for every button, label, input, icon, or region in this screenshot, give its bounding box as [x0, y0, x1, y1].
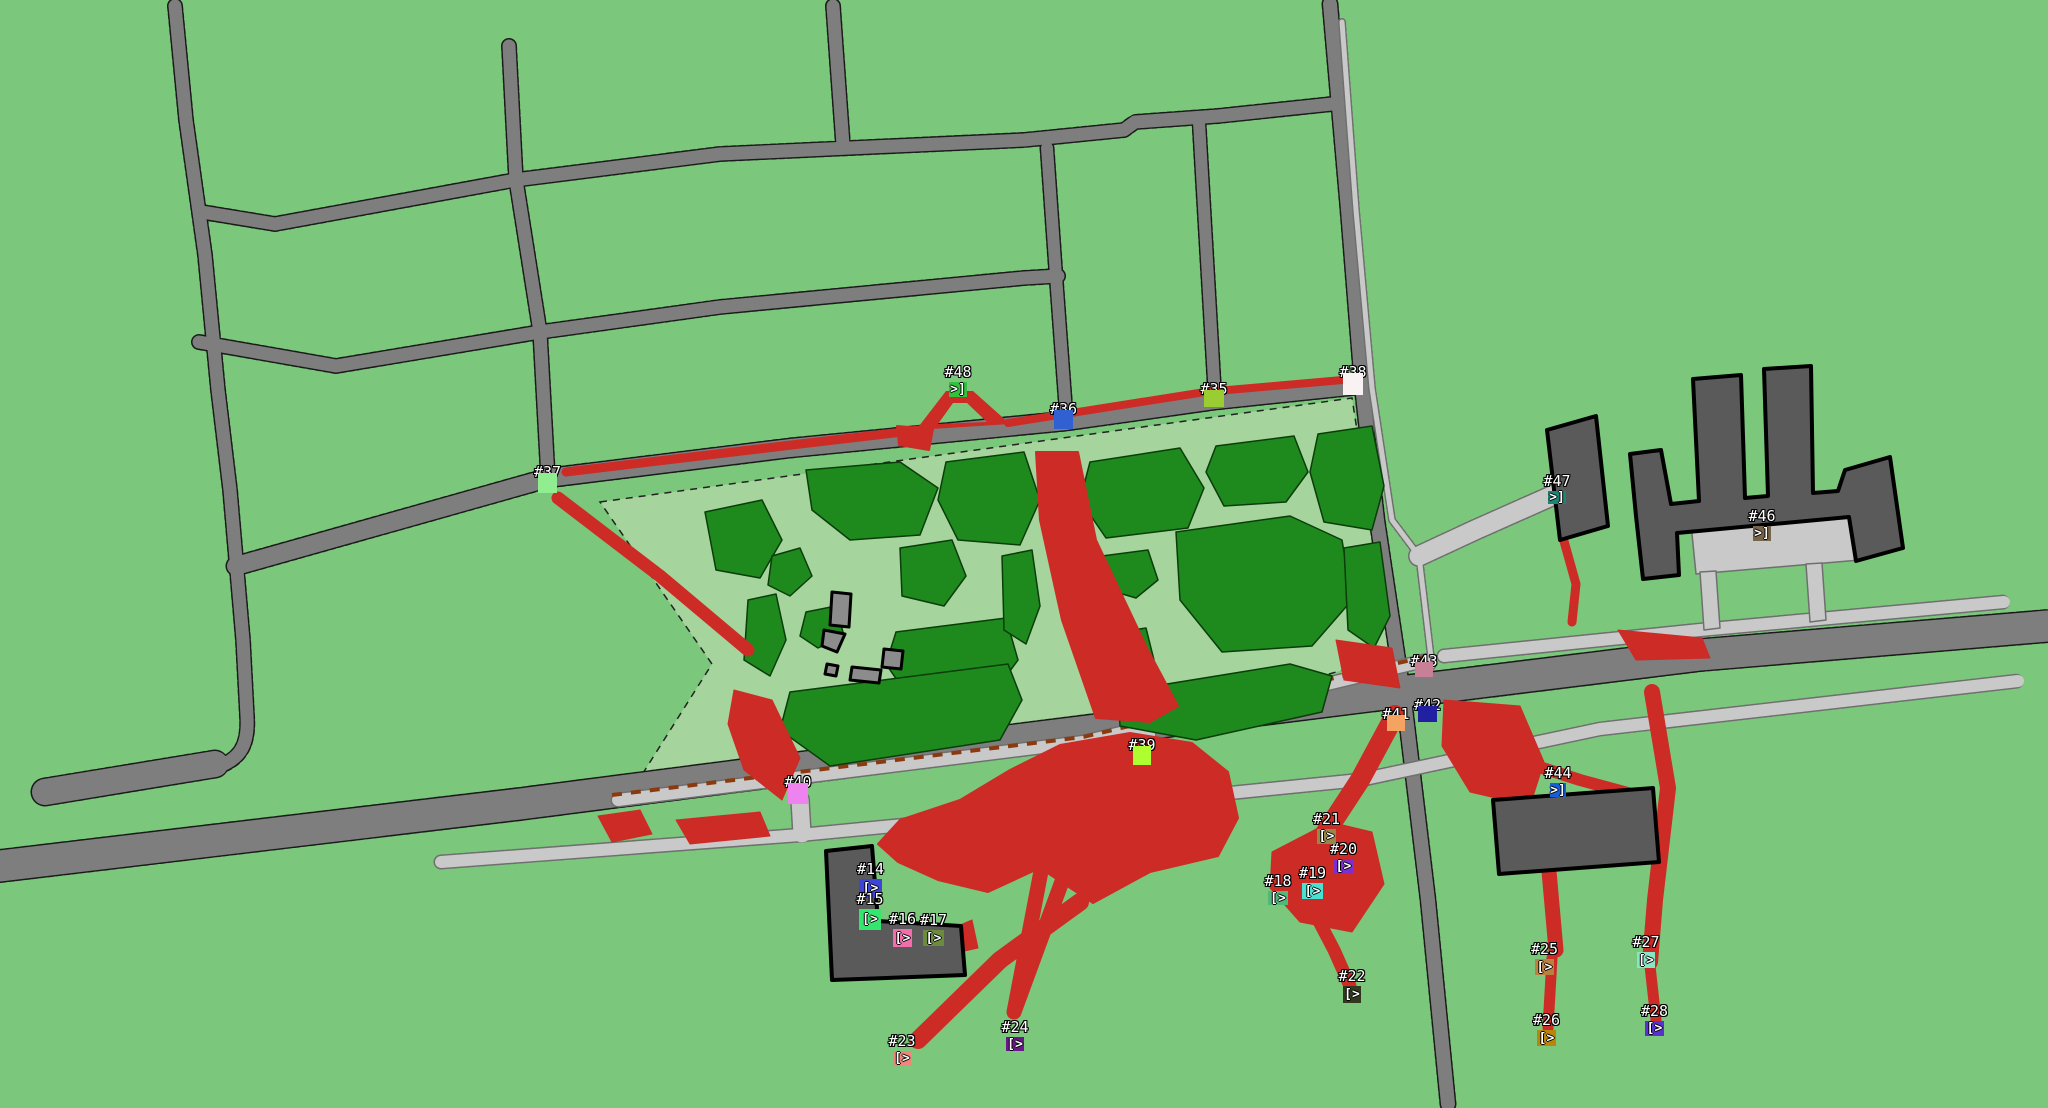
route-endpoint-icon: [>	[862, 913, 878, 926]
vehicle-marker-26[interactable]: #26[>	[1537, 1030, 1556, 1046]
marker-box[interactable]: [>	[1006, 1037, 1024, 1051]
route-endpoint-icon: >]	[1549, 491, 1565, 504]
marker-box[interactable]	[1054, 410, 1073, 429]
marker-box[interactable]: >]	[949, 382, 967, 397]
vehicle-marker-36[interactable]: #36	[1054, 410, 1073, 429]
route-endpoint-icon: [>	[895, 932, 911, 945]
marker-box[interactable]: [>	[1343, 986, 1361, 1003]
marker-box[interactable]: [>	[1334, 859, 1353, 874]
marker-box[interactable]	[1387, 715, 1405, 731]
route-endpoint-icon: >]	[1550, 784, 1566, 797]
marker-id-label: #16	[889, 912, 916, 927]
marker-id-label: #21	[1313, 812, 1340, 827]
marker-box[interactable]: [>	[1302, 883, 1323, 899]
marker-id-label: #14	[857, 862, 884, 877]
vehicle-marker-43[interactable]: #43	[1415, 662, 1433, 677]
marker-id-label: #44	[1544, 766, 1571, 781]
marker-box[interactable]: [>	[893, 929, 912, 947]
route-endpoint-icon: >]	[1754, 527, 1770, 540]
marker-id-label: #26	[1533, 1013, 1560, 1028]
route-endpoint-icon: [>	[1336, 860, 1352, 873]
vehicle-marker-41[interactable]: #41	[1387, 715, 1405, 731]
marker-box[interactable]: [>	[1268, 891, 1288, 905]
marker-box[interactable]: [>	[1645, 1021, 1664, 1036]
vehicle-marker-20[interactable]: #20[>	[1334, 859, 1353, 874]
markers-layer: #14[>#15[>#16[>#17[>#18[>#19[>#20[>#21[>…	[0, 0, 2048, 1108]
vehicle-marker-27[interactable]: #27[>	[1637, 952, 1655, 968]
marker-box[interactable]	[1415, 662, 1433, 677]
vehicle-marker-25[interactable]: #25[>	[1535, 959, 1554, 975]
route-endpoint-icon: [>	[1344, 988, 1360, 1001]
route-endpoint-icon: [>	[1007, 1038, 1023, 1051]
vehicle-marker-22[interactable]: #22[>	[1343, 986, 1361, 1003]
marker-id-label: #20	[1330, 842, 1357, 857]
vehicle-marker-24[interactable]: #24[>	[1006, 1037, 1024, 1051]
vehicle-marker-21[interactable]: #21[>	[1317, 829, 1336, 844]
marker-id-label: #46	[1748, 509, 1775, 524]
vehicle-marker-28[interactable]: #28[>	[1645, 1021, 1664, 1036]
vehicle-marker-17[interactable]: #17[>	[923, 930, 944, 946]
vehicle-marker-44[interactable]: #44>]	[1550, 783, 1566, 797]
vehicle-marker-16[interactable]: #16[>	[893, 929, 912, 947]
route-endpoint-icon: [>	[1647, 1022, 1663, 1035]
marker-box[interactable]	[788, 783, 808, 804]
marker-id-label: #19	[1299, 866, 1326, 881]
route-endpoint-icon: [>	[926, 932, 942, 945]
route-endpoint-icon: >]	[950, 383, 966, 396]
marker-box[interactable]: [>	[923, 930, 944, 946]
marker-id-label: #22	[1338, 969, 1365, 984]
vehicle-marker-40[interactable]: #40	[788, 783, 808, 804]
vehicle-marker-35[interactable]: #35	[1204, 390, 1224, 407]
vehicle-marker-19[interactable]: #19[>	[1302, 883, 1323, 899]
marker-box[interactable]: >]	[1753, 526, 1771, 541]
marker-box[interactable]	[1133, 746, 1151, 765]
vehicle-marker-39[interactable]: #39	[1133, 746, 1151, 765]
route-endpoint-icon: [>	[894, 1052, 910, 1065]
marker-box[interactable]: >]	[1550, 783, 1566, 797]
vehicle-marker-46[interactable]: #46>]	[1753, 526, 1771, 541]
marker-id-label: #24	[1001, 1020, 1028, 1035]
route-endpoint-icon: [>	[1638, 954, 1654, 967]
marker-box[interactable]: [>	[1637, 952, 1655, 968]
marker-id-label: #47	[1543, 474, 1570, 489]
marker-box[interactable]: >]	[1548, 491, 1566, 504]
marker-box[interactable]	[1418, 706, 1437, 722]
vehicle-marker-37[interactable]: #37	[538, 473, 557, 493]
marker-box[interactable]: [>	[893, 1051, 911, 1066]
marker-box[interactable]	[538, 473, 557, 493]
route-endpoint-icon: [>	[1537, 961, 1553, 974]
vehicle-marker-18[interactable]: #18[>	[1268, 891, 1288, 905]
route-endpoint-icon: [>	[1539, 1032, 1555, 1045]
marker-id-label: #15	[856, 892, 883, 907]
vehicle-marker-15[interactable]: #15[>	[859, 909, 881, 930]
vehicle-marker-48[interactable]: #48>]	[949, 382, 967, 397]
vehicle-marker-38[interactable]: #38	[1343, 373, 1363, 395]
vehicle-marker-23[interactable]: #23[>	[893, 1051, 911, 1066]
vehicle-marker-42[interactable]: #42	[1418, 706, 1437, 722]
route-endpoint-icon: [>	[1319, 830, 1335, 843]
marker-box[interactable]	[1204, 390, 1224, 407]
marker-box[interactable]: [>	[1317, 829, 1336, 844]
marker-box[interactable]: [>	[1537, 1030, 1556, 1046]
marker-id-label: #25	[1531, 942, 1558, 957]
marker-box[interactable]: [>	[859, 909, 881, 930]
vehicle-marker-47[interactable]: #47>]	[1548, 491, 1566, 504]
marker-box[interactable]	[1343, 373, 1363, 395]
marker-id-label: #48	[944, 365, 971, 380]
marker-id-label: #17	[920, 913, 947, 928]
route-endpoint-icon: [>	[1305, 885, 1321, 898]
simulation-map-stage: #14[>#15[>#16[>#17[>#18[>#19[>#20[>#21[>…	[0, 0, 2048, 1108]
marker-box[interactable]: [>	[1535, 959, 1554, 975]
marker-id-label: #27	[1632, 935, 1659, 950]
marker-id-label: #28	[1641, 1004, 1668, 1019]
marker-id-label: #23	[888, 1034, 915, 1049]
route-endpoint-icon: [>	[1270, 892, 1286, 905]
marker-id-label: #18	[1264, 874, 1291, 889]
